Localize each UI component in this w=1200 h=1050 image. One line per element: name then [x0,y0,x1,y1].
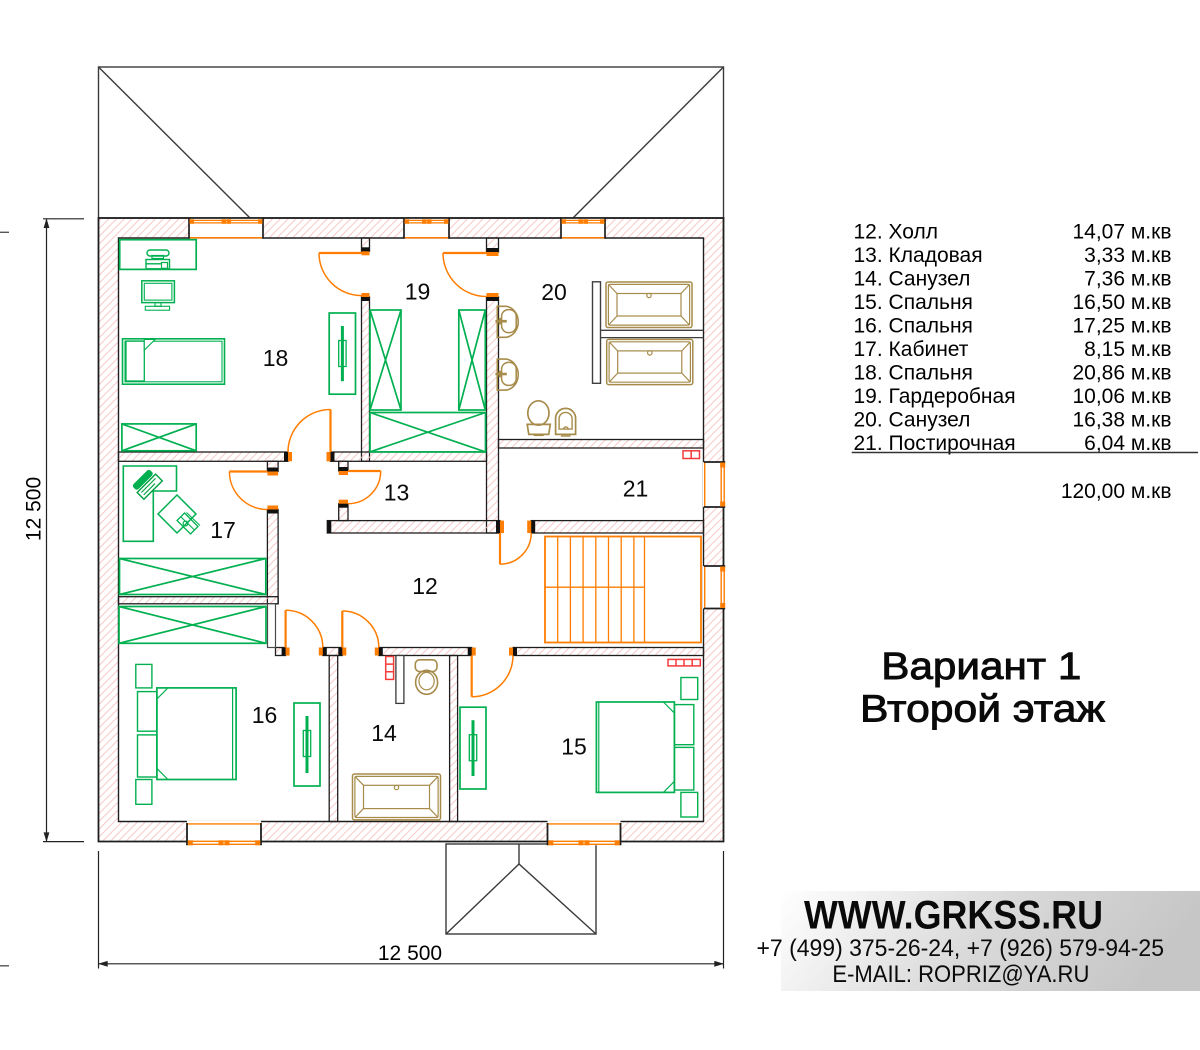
svg-text:20,86 м.кв: 20,86 м.кв [1072,362,1171,385]
svg-text:Вариант 1: Вариант 1 [881,646,1081,688]
svg-text:20. Санузел: 20. Санузел [854,409,971,432]
svg-text:12 500: 12 500 [23,477,46,541]
svg-text:16: 16 [252,702,278,728]
svg-text:15. Спальня: 15. Спальня [854,291,973,314]
svg-text:12 500: 12 500 [378,942,442,965]
svg-text:13. Кладовая: 13. Кладовая [854,244,983,267]
svg-text:18. Спальня: 18. Спальня [854,362,973,385]
svg-text:8,15 м.кв: 8,15 м.кв [1084,338,1171,361]
svg-text:12. Холл: 12. Холл [854,221,939,244]
svg-text:17,25 м.кв: 17,25 м.кв [1072,315,1171,338]
svg-text:7,36 м.кв: 7,36 м.кв [1084,268,1171,291]
svg-text:14. Санузел: 14. Санузел [854,268,971,291]
svg-text:12: 12 [412,573,438,599]
svg-text:WWW.GRKSS.RU: WWW.GRKSS.RU [804,893,1103,937]
svg-text:17: 17 [210,517,236,543]
svg-text:16. Спальня: 16. Спальня [854,315,973,338]
svg-text:10,06 м.кв: 10,06 м.кв [1072,385,1171,408]
svg-text:13: 13 [384,480,410,506]
svg-text:19. Гардеробная: 19. Гардеробная [854,385,1016,408]
svg-text:19: 19 [405,279,431,305]
svg-text:17. Кабинет: 17. Кабинет [854,338,969,361]
svg-text:15: 15 [561,734,587,760]
svg-text:21: 21 [623,476,649,502]
svg-text:20: 20 [541,279,567,305]
svg-text:18: 18 [263,345,289,371]
svg-text:E-MAIL: ROPRIZ@YA.RU: E-MAIL: ROPRIZ@YA.RU [832,961,1089,988]
svg-text:14: 14 [371,720,397,746]
svg-text:16,50 м.кв: 16,50 м.кв [1072,291,1171,314]
svg-text:3,33 м.кв: 3,33 м.кв [1084,244,1171,267]
svg-text:Второй этаж: Второй этаж [860,689,1106,731]
svg-text:16,38 м.кв: 16,38 м.кв [1072,409,1171,432]
svg-text:14,07 м.кв: 14,07 м.кв [1072,221,1171,244]
svg-text:120,00 м.кв: 120,00 м.кв [1061,480,1172,503]
svg-text:+7 (499) 375-26-24, +7 (926) 5: +7 (499) 375-26-24, +7 (926) 579-94-25 [757,935,1165,962]
